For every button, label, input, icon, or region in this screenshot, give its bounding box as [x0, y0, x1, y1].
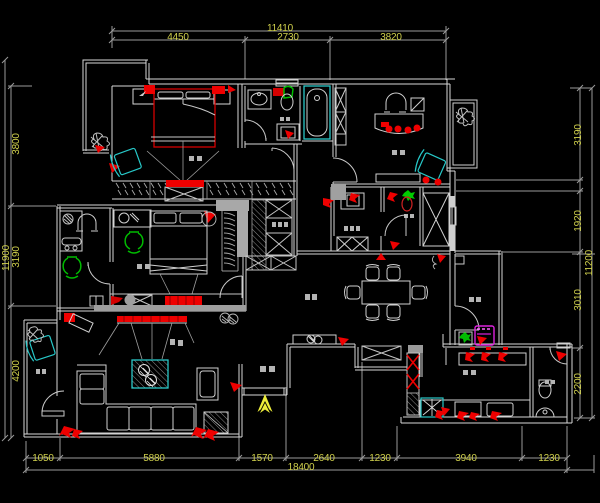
svg-text:3820: 3820 [380, 32, 402, 43]
svg-text:11200: 11200 [584, 249, 595, 276]
svg-text:4200: 4200 [11, 360, 22, 382]
svg-text:3190: 3190 [11, 246, 22, 268]
svg-text:3800: 3800 [11, 133, 22, 155]
svg-text:3010: 3010 [573, 289, 584, 311]
svg-text:1920: 1920 [573, 210, 584, 232]
svg-text:3190: 3190 [573, 124, 584, 146]
svg-text:3940: 3940 [455, 453, 477, 464]
svg-text:2640: 2640 [313, 453, 335, 464]
svg-text:1050: 1050 [32, 453, 54, 464]
svg-text:4450: 4450 [167, 32, 189, 43]
svg-text:1230: 1230 [369, 453, 391, 464]
svg-text:2730: 2730 [277, 32, 299, 43]
svg-text:18400: 18400 [288, 462, 315, 473]
svg-text:5880: 5880 [143, 453, 165, 464]
svg-text:1570: 1570 [251, 453, 273, 464]
svg-text:2200: 2200 [573, 373, 584, 395]
svg-text:1230: 1230 [538, 453, 560, 464]
